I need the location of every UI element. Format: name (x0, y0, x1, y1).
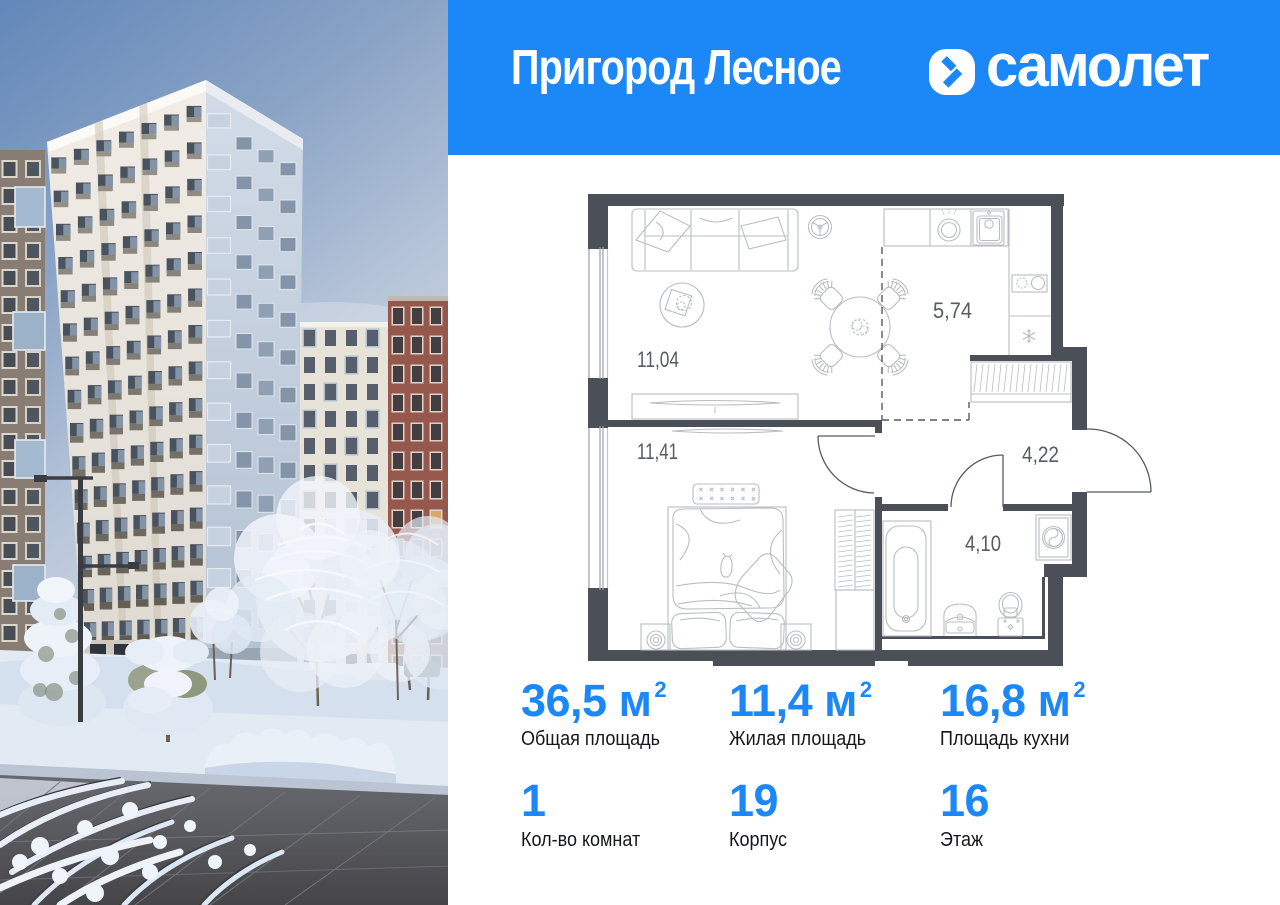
svg-text:4,22: 4,22 (1022, 442, 1059, 467)
svg-text:5,74: 5,74 (933, 298, 972, 323)
svg-text:11,41: 11,41 (637, 439, 678, 464)
svg-text:11,04: 11,04 (637, 347, 679, 372)
svg-text:4,10: 4,10 (965, 531, 1001, 556)
